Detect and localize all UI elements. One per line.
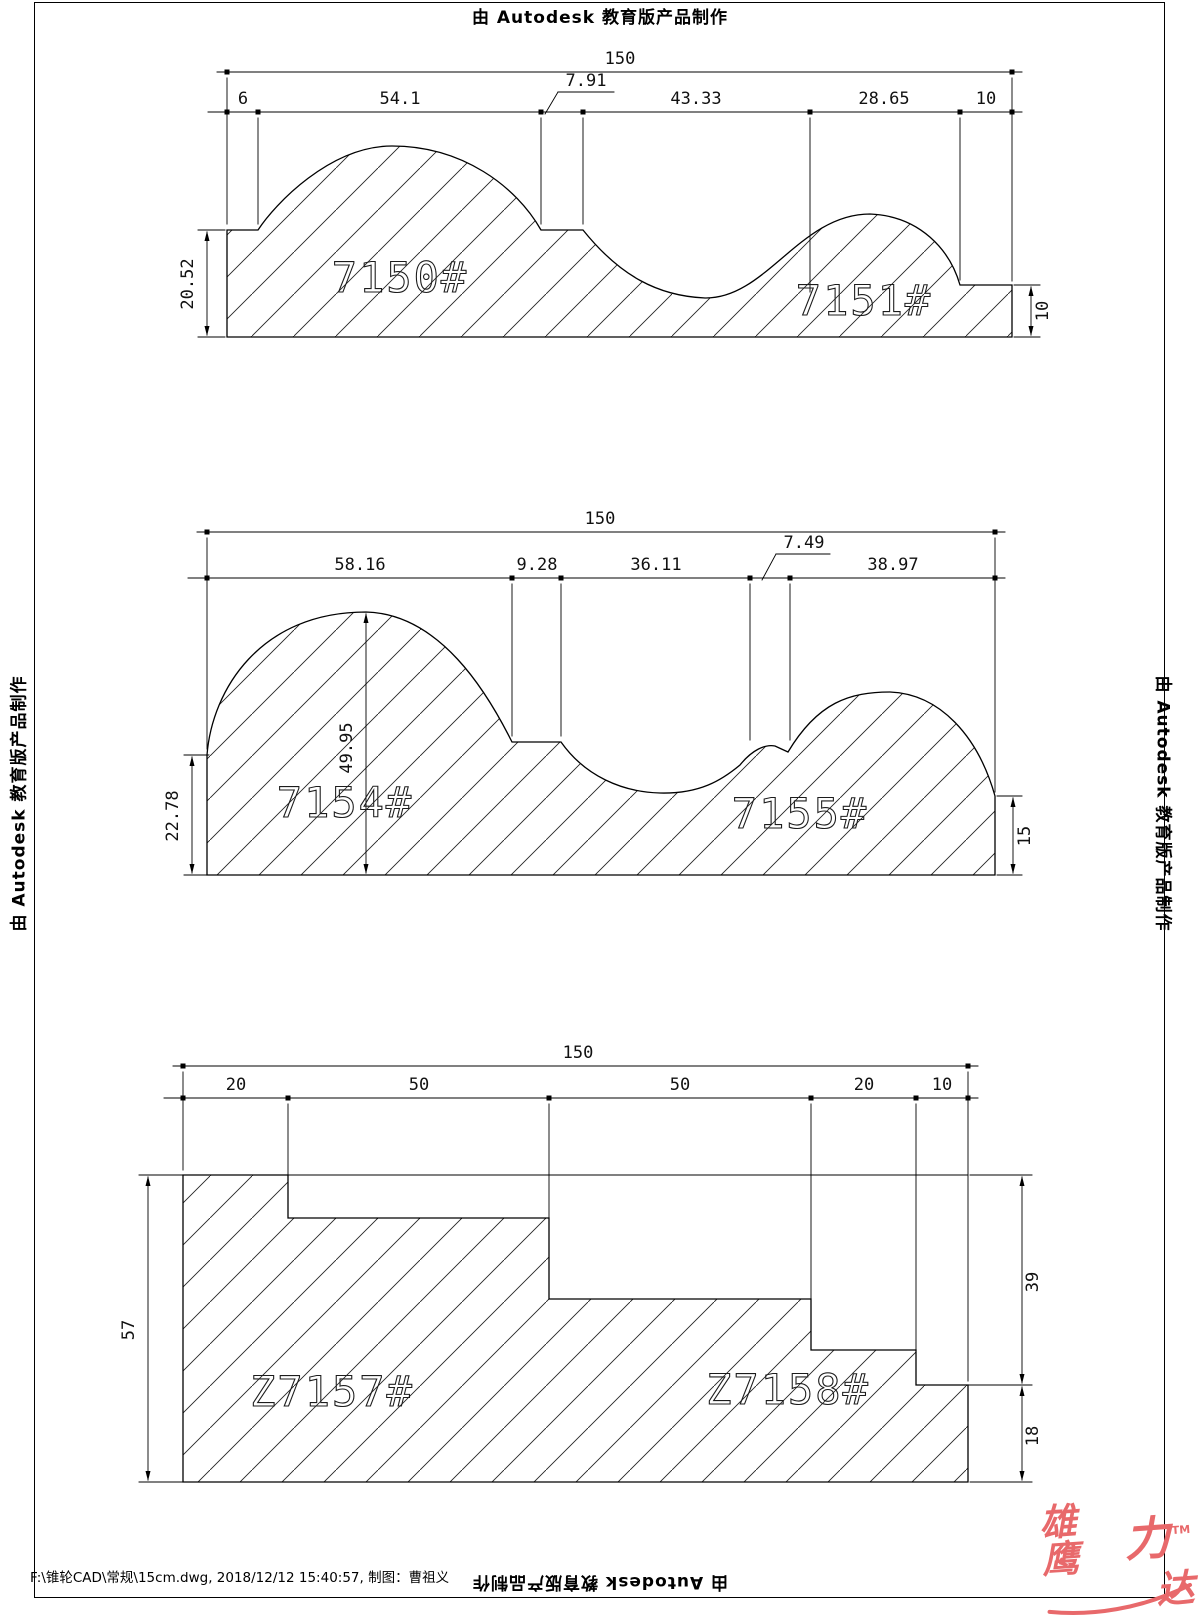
dim-seg: 50 (670, 1075, 690, 1095)
autodesk-banner-top: 由 Autodesk 教育版产品制作 (0, 3, 1200, 28)
brand-logo: 雄鹰 力 TM 达 (1038, 1495, 1196, 1622)
profile-outline (207, 612, 995, 875)
dim-seg: 20 (854, 1075, 874, 1095)
dim-overall-top: 150 (605, 49, 636, 69)
drawing-bottom-profile: 150 20 50 50 20 10 57 (119, 1043, 1043, 1482)
dim-right-lower-height: 18 (1023, 1426, 1043, 1446)
dim-seg: 28.65 (858, 89, 909, 109)
autodesk-banner-right: 由 Autodesk 教育版产品制作 (1153, 634, 1178, 974)
part-label: 7155# (732, 789, 868, 838)
dim-seg: 20 (226, 1075, 246, 1095)
dim-peak-height: 49.95 (337, 722, 357, 773)
dim-right-upper-height: 39 (1023, 1272, 1043, 1292)
dim-left-height: 20.52 (178, 258, 198, 309)
part-label: 7154# (277, 778, 413, 827)
dim-seg: 6 (238, 89, 248, 109)
brand-logo-text: 雄鹰 (1038, 1500, 1123, 1579)
part-label: 7151# (796, 276, 932, 325)
dim-seg: 50 (409, 1075, 429, 1095)
dim-seg: 58.16 (334, 555, 385, 575)
dim-seg: 10 (976, 89, 996, 109)
dim-seg: 38.97 (867, 555, 918, 575)
trademark-symbol: TM (1171, 1524, 1190, 1536)
dim-right-height: 10 (1033, 301, 1053, 321)
dim-seg: 9.28 (517, 555, 558, 575)
dim-seg: 36.11 (630, 555, 681, 575)
cad-sheet: { "page": { "autodesk_notice": "由 Autode… (0, 0, 1200, 1600)
dim-right-height: 15 (1015, 826, 1035, 846)
part-label: Z7157# (250, 1367, 414, 1416)
drawing-middle-profile: 150 58.16 9.28 36.11 7.49 38.97 (163, 509, 1035, 875)
drawing-top-profile: 150 6 54.1 7.91 43.33 28.65 10 (178, 49, 1053, 337)
dim-seg: 54.1 (380, 89, 421, 109)
dim-seg: 10 (932, 1075, 952, 1095)
plot-stamp: F:\锥轮CAD\常规\15cm.dwg, 2018/12/12 15:40:5… (30, 1566, 449, 1586)
dim-left-height: 22.78 (163, 790, 183, 841)
part-label: 7150# (332, 253, 468, 302)
dim-left-height: 57 (119, 1320, 139, 1340)
dim-overall-bottom: 150 (563, 1043, 594, 1063)
dim-seg: 43.33 (670, 89, 721, 109)
brand-logo-text: 力 (1123, 1514, 1172, 1563)
autodesk-banner-left: 由 Autodesk 教育版产品制作 (5, 634, 30, 974)
part-label: Z7158# (706, 1365, 870, 1414)
dim-seg: 7.49 (784, 533, 825, 553)
profile-outline (183, 1175, 968, 1482)
dim-overall-middle: 150 (585, 509, 616, 529)
brand-logo-text: 达 (1155, 1569, 1196, 1610)
cad-canvas: 150 6 54.1 7.91 43.33 28.65 10 (0, 0, 1200, 1600)
dim-seg: 7.91 (566, 71, 607, 91)
